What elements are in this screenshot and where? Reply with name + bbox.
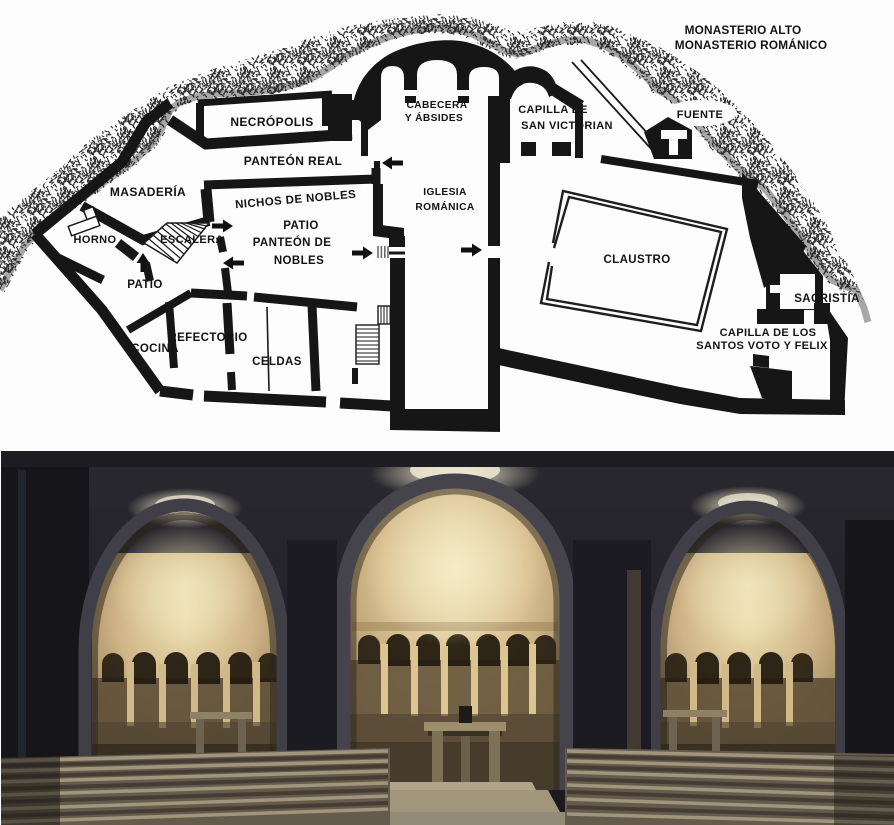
svg-text:CLAUSTRO: CLAUSTRO (603, 254, 670, 266)
svg-text:HORNO: HORNO (74, 234, 117, 246)
svg-text:PATIO: PATIO (127, 279, 162, 291)
svg-text:REFECTORIO: REFECTORIO (168, 332, 247, 344)
svg-text:ESCALERA: ESCALERA (160, 234, 224, 246)
svg-text:PANTEÓN REAL: PANTEÓN REAL (244, 153, 343, 168)
svg-text:CAPILLA DE LOS: CAPILLA DE LOS (720, 327, 817, 339)
svg-text:CAPILLA DE: CAPILLA DE (518, 104, 588, 116)
svg-text:SAN VICTORIAN: SAN VICTORIAN (521, 120, 613, 132)
svg-text:NECRÓPOLIS: NECRÓPOLIS (230, 114, 313, 129)
svg-text:SANTOS VOTO Y FELIX: SANTOS VOTO Y FELIX (696, 340, 828, 352)
svg-text:PATIO: PATIO (283, 220, 318, 232)
svg-text:ROMÁNICA: ROMÁNICA (415, 200, 474, 213)
svg-text:CELDAS: CELDAS (252, 356, 302, 368)
svg-text:Y ÁBSIDES: Y ÁBSIDES (405, 111, 463, 124)
svg-text:MONASTERIO ALTO: MONASTERIO ALTO (685, 23, 802, 37)
svg-text:PANTEÓN DE: PANTEÓN DE (253, 236, 332, 249)
svg-text:MASADERÍA: MASADERÍA (110, 184, 186, 199)
svg-text:NOBLES: NOBLES (274, 255, 324, 267)
svg-text:COCINA: COCINA (131, 343, 179, 355)
svg-text:CABECERA: CABECERA (407, 100, 468, 111)
svg-text:FUENTE: FUENTE (677, 109, 723, 121)
svg-text:SACRISTÍA: SACRISTÍA (794, 292, 860, 305)
svg-text:IGLESIA: IGLESIA (423, 187, 467, 198)
svg-text:MONASTERIO ROMÁNICO: MONASTERIO ROMÁNICO (675, 38, 828, 52)
